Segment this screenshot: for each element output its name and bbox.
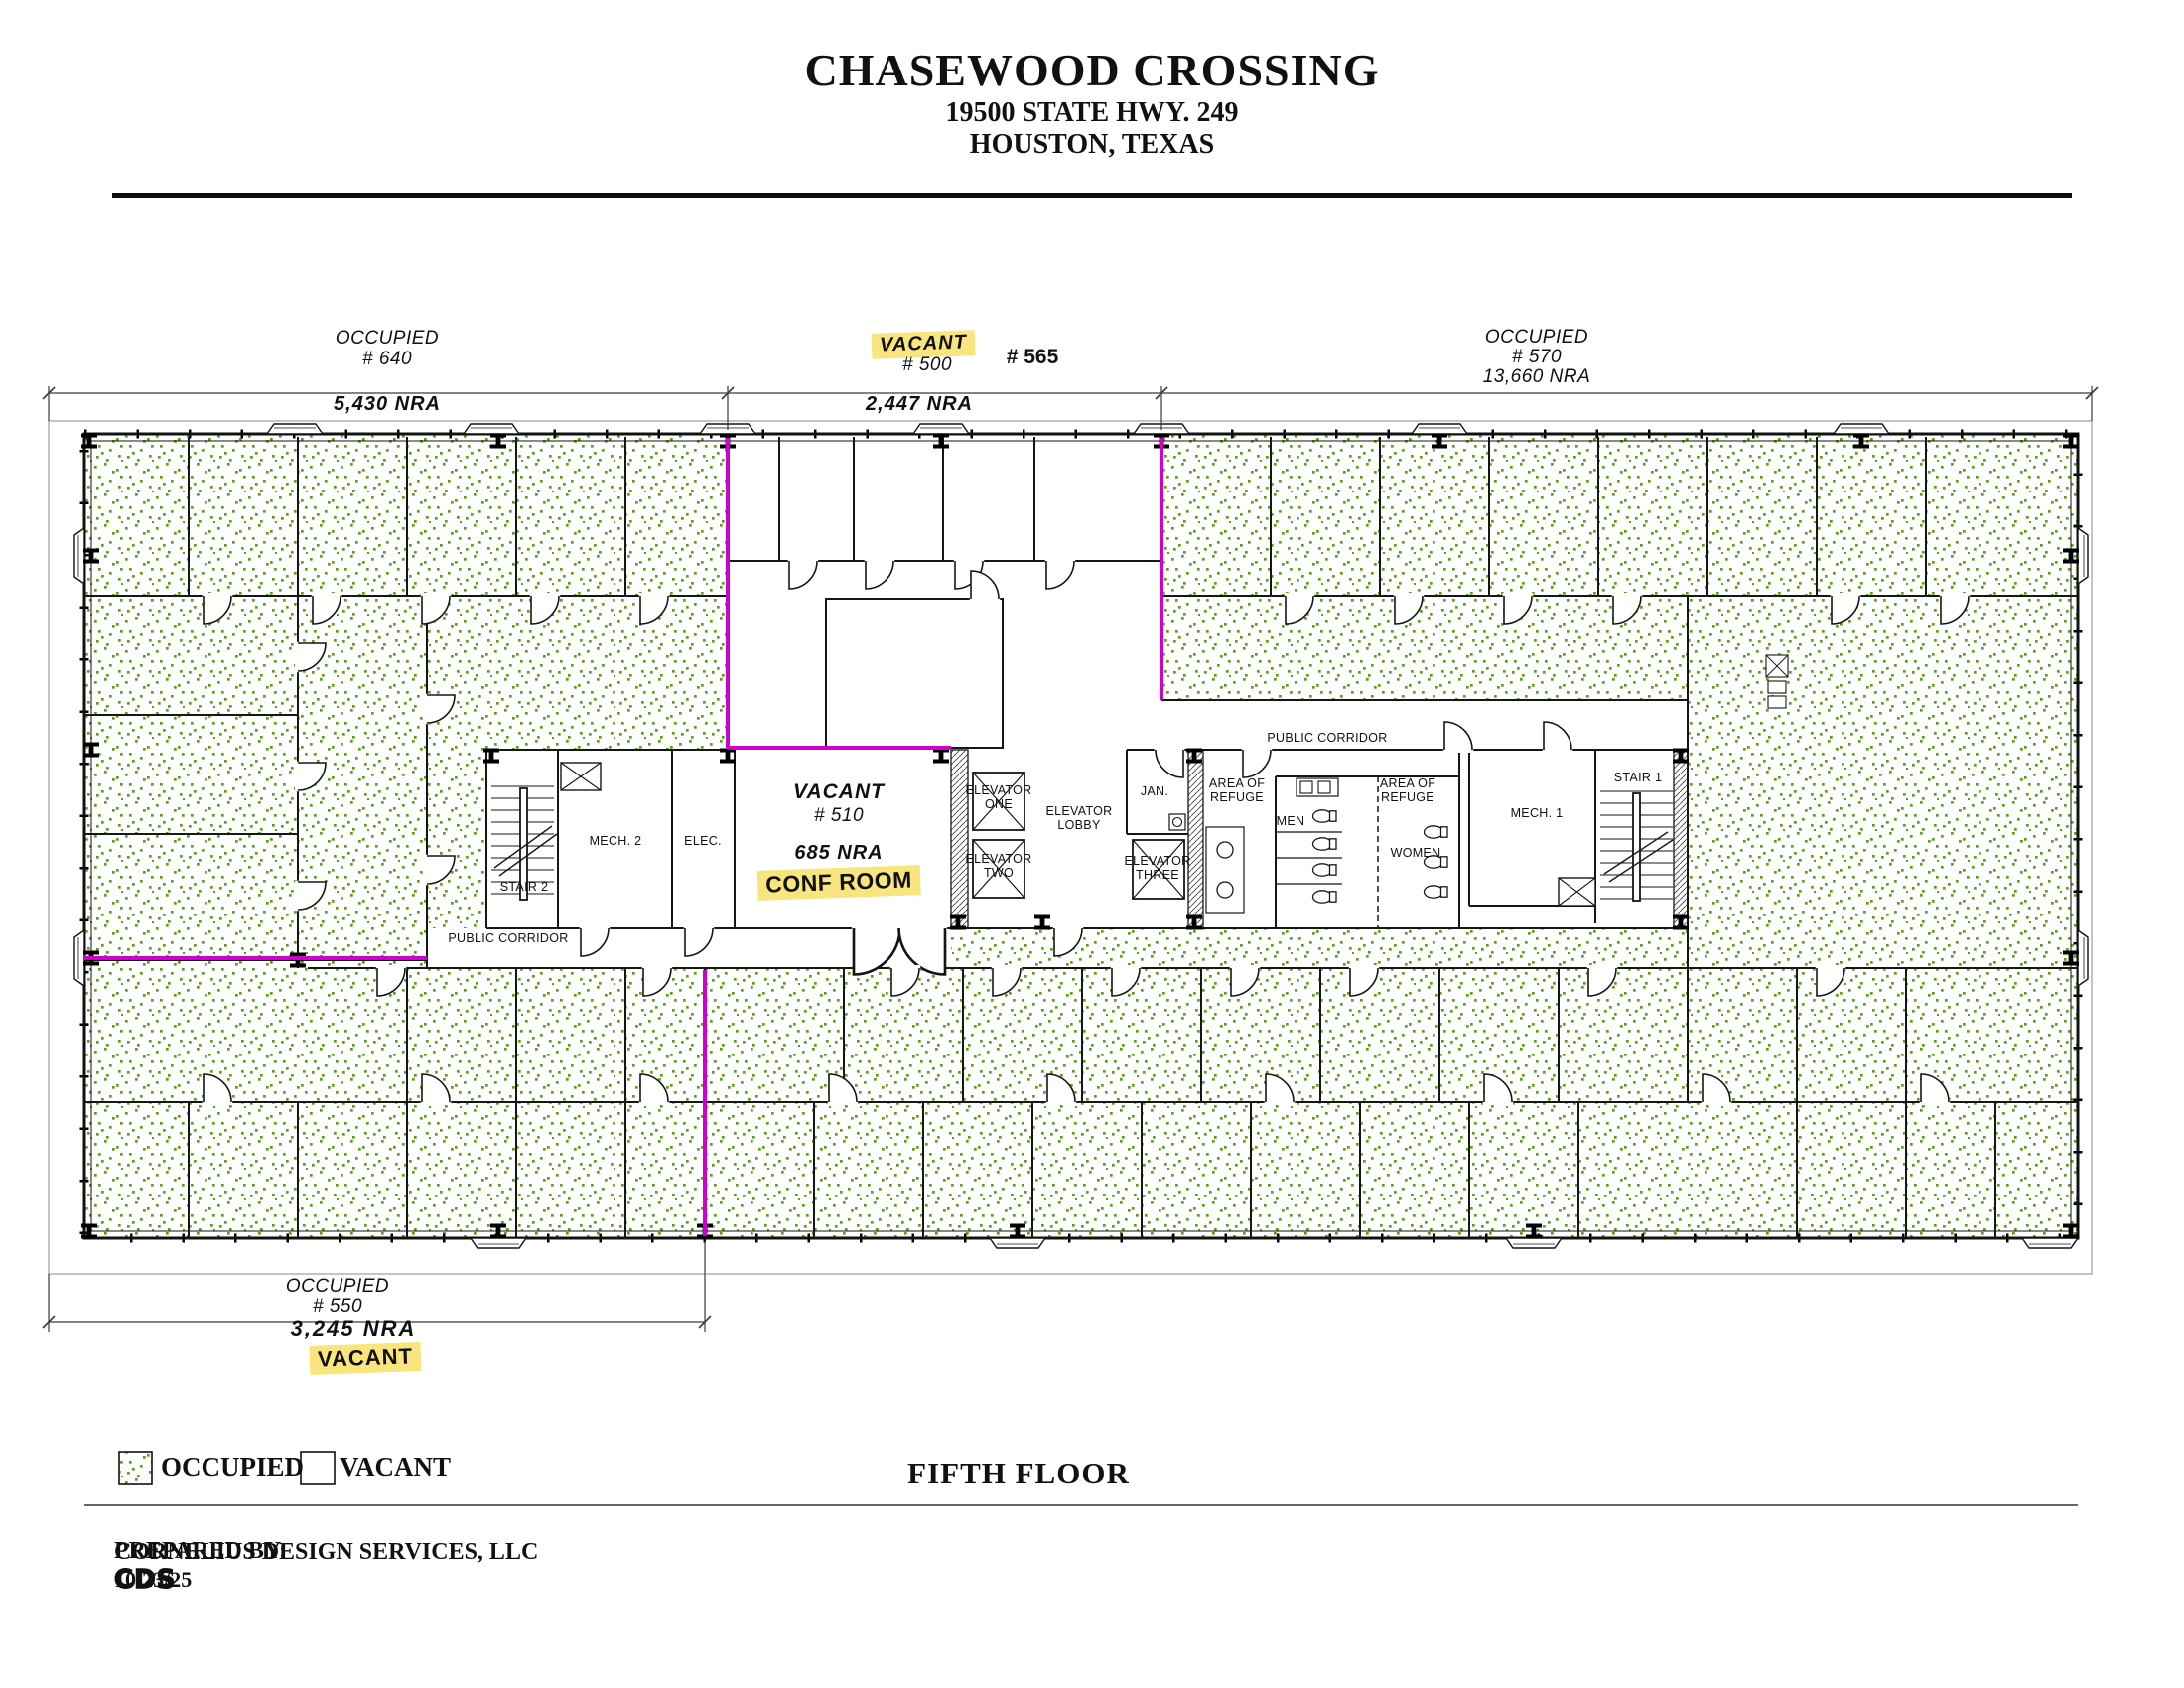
suite-550-nra: 3,245 NRA [291,1316,417,1341]
floor-title: FIFTH FLOOR [907,1456,1130,1491]
occupied-hatch-regions [84,434,2078,1238]
floor-plan-page: CHASEWOOD CROSSING 19500 STATE HWY. 249 … [0,0,2184,1688]
suite-570-status: OCCUPIED [1485,328,1588,349]
room-public-corridor-right: PUBLIC CORRIDOR [1267,731,1387,745]
conf-room-highlight: CONF ROOM [757,865,921,901]
room-jan: JAN. [1141,784,1168,798]
suite-500-nra: 2,447 NRA [866,393,973,416]
suite-565-label: # 565 [1007,346,1059,369]
address-line-1: 19500 STATE HWY. 249 [945,97,1238,129]
room-elevator-one: ELEVATOR ONE [965,783,1031,812]
suite-570-number: # 570 [1512,348,1562,368]
room-public-corridor-left: PUBLIC CORRIDOR [448,931,568,945]
suite-550-number: # 550 [313,1297,362,1318]
room-women: WOMEN [1391,846,1441,860]
room-mech-2: MECH. 2 [590,834,642,848]
room-stair-1: STAIR 1 [1614,771,1662,784]
header-rule [112,193,2072,198]
page-title: CHASEWOOD CROSSING [804,44,1379,96]
room-elevator-three: ELEVATOR THREE [1124,854,1190,883]
room-mech-1: MECH. 1 [1511,806,1564,820]
room-elevator-lobby: ELEVATOR LOBBY [1045,804,1112,833]
company-name: CORNELIUS DESIGN SERVICES, LLC [114,1539,538,1566]
prepared-date: 10/23/25 [114,1567,192,1593]
room-elec: ELEC. [684,834,722,848]
suite-640-status: OCCUPIED [336,329,439,350]
suite-510-nra: 685 NRA [794,842,883,865]
room-stair-2: STAIR 2 [500,880,548,894]
address-line-2: HOUSTON, TEXAS [970,129,1214,161]
suite-510-number: # 510 [814,806,864,827]
suite-550-status: OCCUPIED [286,1277,389,1298]
suite-500-number: # 500 [902,355,952,376]
legend-vacant-label: VACANT [340,1452,451,1482]
suite-640-number: # 640 [362,350,412,370]
room-area-of-refuge-1: AREA OF REFUGE [1209,776,1265,805]
suite-640-nra: 5,430 NRA [334,393,441,416]
room-men: MEN [1277,814,1305,828]
stair-1-glyph [1600,791,1673,901]
suite-570-nra: 13,660 NRA [1483,367,1591,388]
room-elevator-two: ELEVATOR TWO [965,852,1031,881]
legend-occupied-label: OCCUPIED [161,1452,304,1482]
floor-plan-drawing [0,0,2184,1688]
suite-550-vacant-highlight: VACANT [310,1342,422,1375]
room-area-of-refuge-2: AREA OF REFUGE [1380,776,1435,805]
suite-510-status: VACANT [793,780,885,804]
